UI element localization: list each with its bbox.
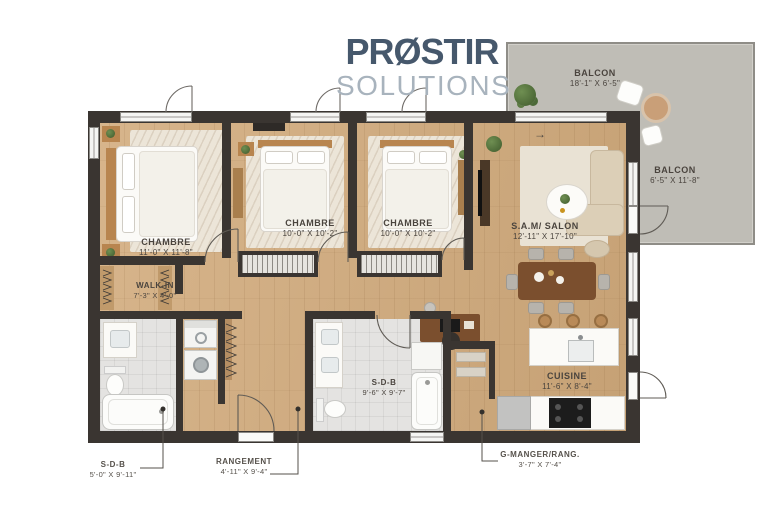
tableware [556,276,564,284]
wall-segment [489,349,495,399]
exterior-wall-left [88,111,100,443]
room-label-walkin: WALK-IN 7'-3" X 4'-0" [95,281,215,300]
callout-name: RANGEMENT [194,457,294,466]
wall-segment [100,256,205,265]
plant [486,136,502,152]
logo: PRØSTIR SOLUTIONS [336,34,508,100]
logo-subtitle: SOLUTIONS [336,72,508,100]
refrigerator [497,396,531,430]
balcony-dims: 18'-1" X 6'-5" [545,79,645,88]
door-arc-kitchen [640,372,666,398]
room-name: CUISINE [507,371,627,381]
wall-segment [180,311,242,319]
room-name: CHAMBRE [106,237,226,247]
room-dims: 10'-0" X 10'-2" [348,229,468,238]
bar-stool [538,314,552,328]
room-name: S-D-B [324,378,444,387]
wall-segment [176,319,183,431]
dining-chair [558,248,574,260]
callout-sdb1: S-D-B 5'-0" X 9'-11" [63,460,163,479]
pillow [265,151,293,164]
room-dims: 11'-0" X 11'-8" [106,248,226,257]
room-dims: 12'-11" X 17'-10" [485,232,605,241]
kitchen-door-leaf [628,372,638,400]
toilet-tank [104,366,126,374]
bed1 [116,146,198,242]
room-label-living: S.A.M/ SALON 12'-11" X 17'-10" [485,221,605,241]
drain [159,409,164,414]
callout-dims: 5'-0" X 9'-11" [63,470,163,479]
pillow [387,151,415,164]
duvet [139,151,195,237]
bed1-headboard [106,148,116,240]
wall-segment [305,311,313,431]
callout-gmanger: G-MANGER/RANG. 3'-7" X 7'-4" [485,450,595,469]
dining-chair [598,274,610,290]
centerpiece [548,270,554,276]
room-name: CHAMBRE [348,218,468,228]
balcony-name: BALCON [545,68,645,78]
burner [555,416,561,422]
bathtub [102,394,174,430]
window [89,127,99,159]
callout-rangement: RANGEMENT 4'-11" X 9'-4" [194,457,294,476]
window [628,318,638,356]
window-swing [166,86,192,112]
shower [411,342,442,370]
wall-segment [464,123,473,270]
callout-name: S-D-B [63,460,163,469]
dresser [233,168,243,218]
room-dims: 7'-3" X 4'-0" [95,291,215,300]
island-sink [568,340,594,362]
wall-segment [443,311,451,431]
window [290,112,340,122]
balcony-plant [514,84,536,106]
sink-basin [110,330,130,348]
room-dims: 11'-6" X 8'-4" [507,382,627,391]
balcony-dims: 6'-5" X 11'-8" [625,176,725,185]
bar-stool [594,314,608,328]
plant [560,194,570,204]
washer-controls [185,321,216,328]
callout-name: G-MANGER/RANG. [485,450,595,459]
dining-table [518,262,596,300]
kitchen-island [529,328,619,366]
window [120,112,192,122]
window [628,252,638,302]
room-label-bedroom3: CHAMBRE 10'-0" X 10'-2" [348,218,468,238]
wall-segment [451,341,495,349]
toilet-bowl [106,374,124,396]
direction-arrow-icon: → [534,127,546,141]
balcony-name: BALCON [625,165,725,175]
balcony-label-top: BALCON 18'-1" X 6'-5" [545,68,645,88]
burner [577,416,583,422]
pillow [122,153,135,190]
exterior-wall-bottom [88,431,640,443]
room-label-bathroom2: S-D-B 9'-6" X 9'-7" [324,378,444,397]
room-dims: 9'-6" X 9'-7" [324,388,444,397]
stove [549,398,591,428]
room-name: S.A.M/ SALON [485,221,605,231]
dining-chair [528,248,544,260]
entry-door-leaf [238,432,274,442]
bath1-vanity [103,322,137,358]
toilet-bowl [324,400,346,418]
window [410,432,444,442]
dryer [184,350,217,380]
burner [577,404,583,410]
dining-chair [506,274,518,290]
callout-dims: 4'-11" X 9'-4" [194,467,294,476]
burner [555,404,561,410]
pillow [122,196,135,233]
papers [464,321,474,329]
tv [478,170,482,216]
ottoman [584,240,610,258]
dining-chair [558,302,574,314]
window [366,112,426,122]
wall-segment [305,311,375,319]
window [515,112,607,122]
room-label-kitchen: CUISINE 11'-6" X 8'-4" [507,371,627,391]
balcony-label-right: BALCON 6'-5" X 11'-8" [625,165,725,185]
wall-segment [88,311,180,319]
sink-basin [321,357,339,373]
plant [241,145,250,154]
logo-wordmark: PRØSTIR [336,34,508,70]
balcony-table [641,93,671,123]
sink-basin [321,329,339,345]
toilet-tank [316,398,324,422]
room-name: WALK-IN [95,281,215,290]
balcony-door-leaf [628,206,638,234]
bar-stool [566,314,580,328]
pillow [297,151,325,164]
dining-chair [528,302,544,314]
washer [184,320,217,348]
closet-doors [242,255,314,273]
faucet [578,335,583,340]
room-label-bedroom1: CHAMBRE 11'-0" X 11'-8" [106,237,226,257]
pantry-shelf [456,352,486,362]
floor-plan-page: CHAMBRE 11'-0" X 11'-8" CHAMBRE 10'-0" X… [0,0,768,511]
washer-door [195,332,207,344]
pillow [419,151,447,164]
plant [106,129,115,138]
callout-dims: 3'-7" X 7'-4" [485,460,595,469]
decor [560,208,565,213]
wall-segment [218,319,225,404]
closet-doors [361,255,438,273]
tableware [534,272,544,282]
dryer-drum [193,357,209,373]
pantry-shelf [456,367,486,377]
